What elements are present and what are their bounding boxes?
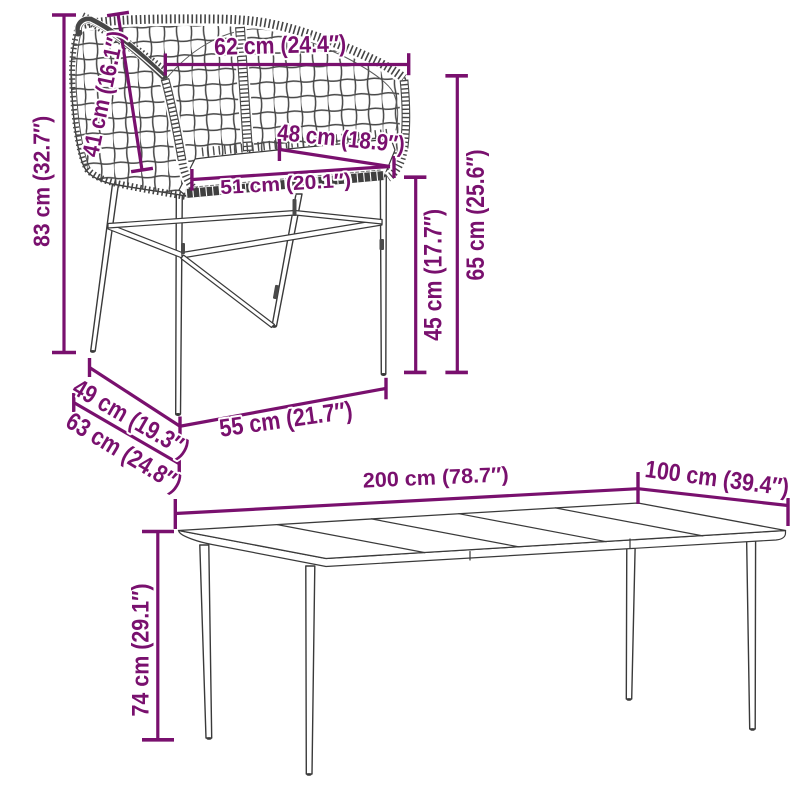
- svg-text:83 cm (32.7″): 83 cm (32.7″): [29, 116, 55, 247]
- svg-text:45 cm (17.7″): 45 cm (17.7″): [420, 209, 448, 341]
- svg-text:74 cm (29.1″): 74 cm (29.1″): [128, 584, 155, 717]
- svg-text:65 cm (25.6″): 65 cm (25.6″): [462, 150, 490, 281]
- svg-text:62 cm (24.4″): 62 cm (24.4″): [214, 30, 347, 60]
